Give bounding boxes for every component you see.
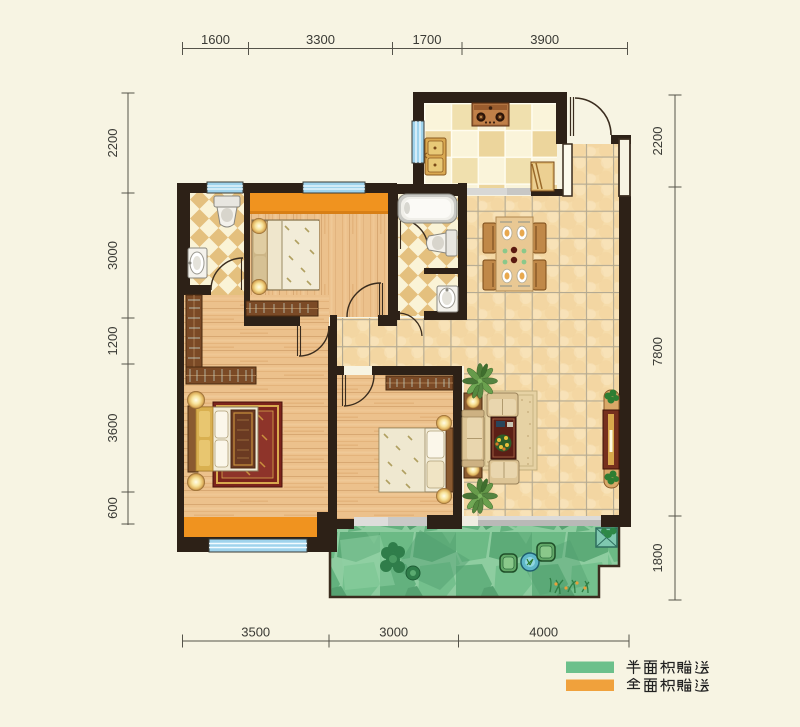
svg-text:3000: 3000	[379, 625, 408, 640]
svg-text:3600: 3600	[105, 414, 120, 443]
svg-text:1700: 1700	[413, 32, 442, 47]
svg-text:2200: 2200	[650, 127, 665, 156]
svg-text:1800: 1800	[650, 544, 665, 573]
svg-text:3000: 3000	[105, 241, 120, 270]
svg-text:7800: 7800	[650, 337, 665, 366]
svg-text:4000: 4000	[529, 625, 558, 640]
svg-text:3900: 3900	[530, 32, 559, 47]
svg-text:600: 600	[105, 497, 120, 519]
svg-text:2200: 2200	[105, 129, 120, 158]
svg-text:3500: 3500	[241, 625, 270, 640]
svg-text:1600: 1600	[201, 32, 230, 47]
svg-text:3300: 3300	[306, 32, 335, 47]
svg-text:1200: 1200	[105, 327, 120, 356]
